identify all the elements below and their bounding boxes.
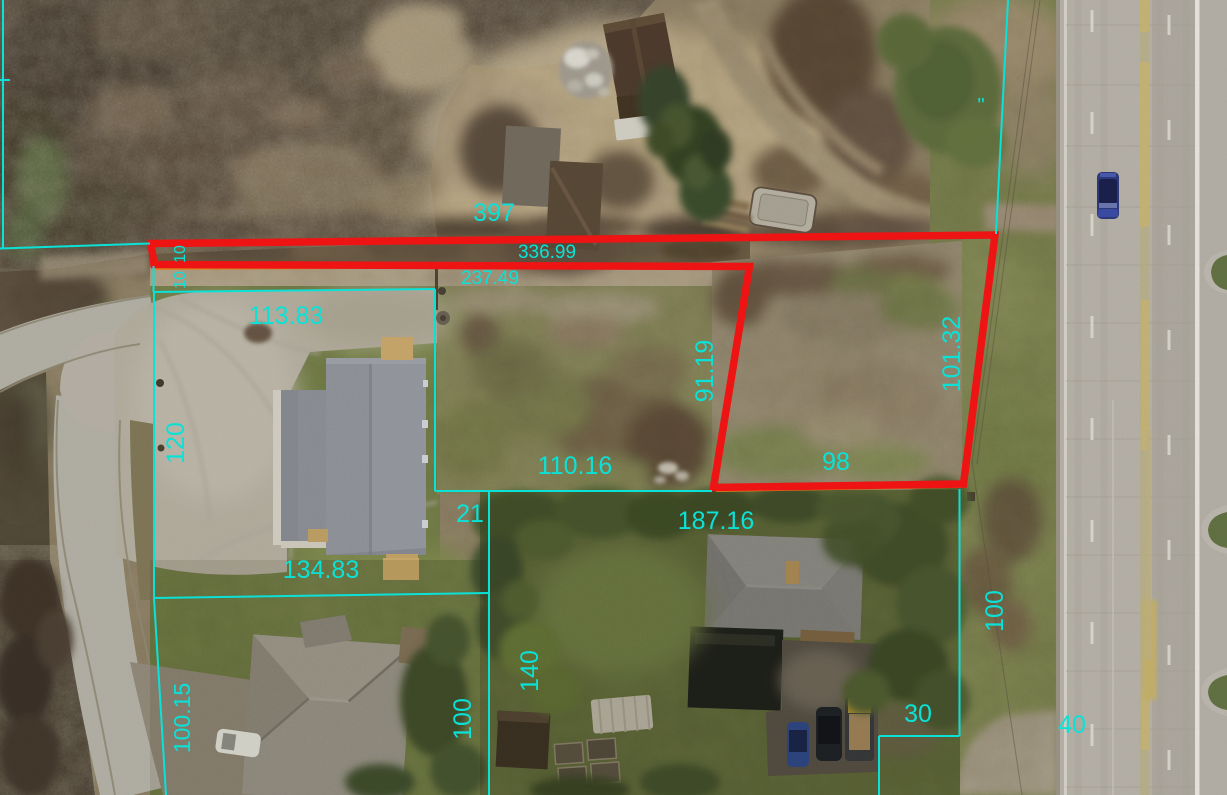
svg-text:110.16: 110.16	[538, 452, 613, 480]
svg-text:30: 30	[904, 700, 932, 728]
svg-text:101.32: 101.32	[938, 316, 966, 392]
svg-text:10: 10	[172, 245, 189, 263]
svg-text:120: 120	[162, 422, 190, 464]
svg-text:237.49: 237.49	[461, 268, 519, 289]
svg-text:": "	[977, 95, 984, 117]
svg-text:91.19: 91.19	[691, 340, 719, 403]
svg-text:113.83: 113.83	[249, 302, 324, 330]
svg-text:187.16: 187.16	[678, 507, 754, 535]
svg-text:397: 397	[473, 199, 515, 227]
svg-text:336.99: 336.99	[518, 242, 576, 263]
svg-text:100.15: 100.15	[169, 683, 195, 753]
svg-text:100: 100	[981, 590, 1009, 632]
svg-text:134.83: 134.83	[283, 556, 359, 584]
svg-text:40: 40	[1058, 711, 1086, 739]
svg-text:140: 140	[516, 650, 544, 692]
svg-text:100: 100	[449, 698, 477, 740]
svg-text:21: 21	[456, 500, 484, 528]
svg-text:98: 98	[822, 448, 850, 476]
svg-text:10: 10	[172, 271, 189, 289]
